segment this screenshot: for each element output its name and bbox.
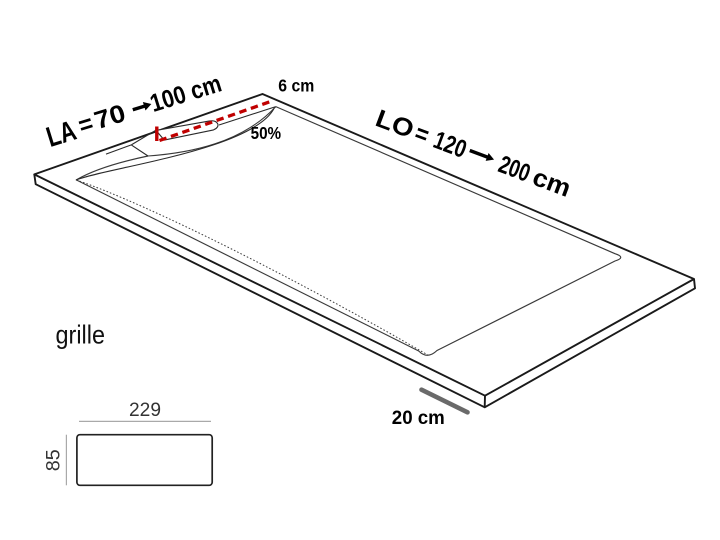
svg-text:grille: grille bbox=[56, 320, 106, 350]
svg-text:LA: LA bbox=[43, 115, 80, 154]
svg-text:50%: 50% bbox=[251, 123, 282, 143]
svg-text:6 cm: 6 cm bbox=[278, 76, 314, 96]
svg-text:20 cm: 20 cm bbox=[392, 407, 445, 429]
svg-text:100: 100 bbox=[147, 80, 190, 117]
svg-text:120: 120 bbox=[430, 126, 471, 164]
svg-text:LO: LO bbox=[372, 104, 418, 144]
svg-text:85: 85 bbox=[44, 449, 65, 471]
svg-text:cm: cm bbox=[529, 163, 575, 203]
svg-text:229: 229 bbox=[129, 399, 161, 421]
svg-text:70: 70 bbox=[91, 99, 129, 135]
svg-text:cm: cm bbox=[187, 69, 225, 105]
svg-text:200: 200 bbox=[495, 150, 534, 187]
